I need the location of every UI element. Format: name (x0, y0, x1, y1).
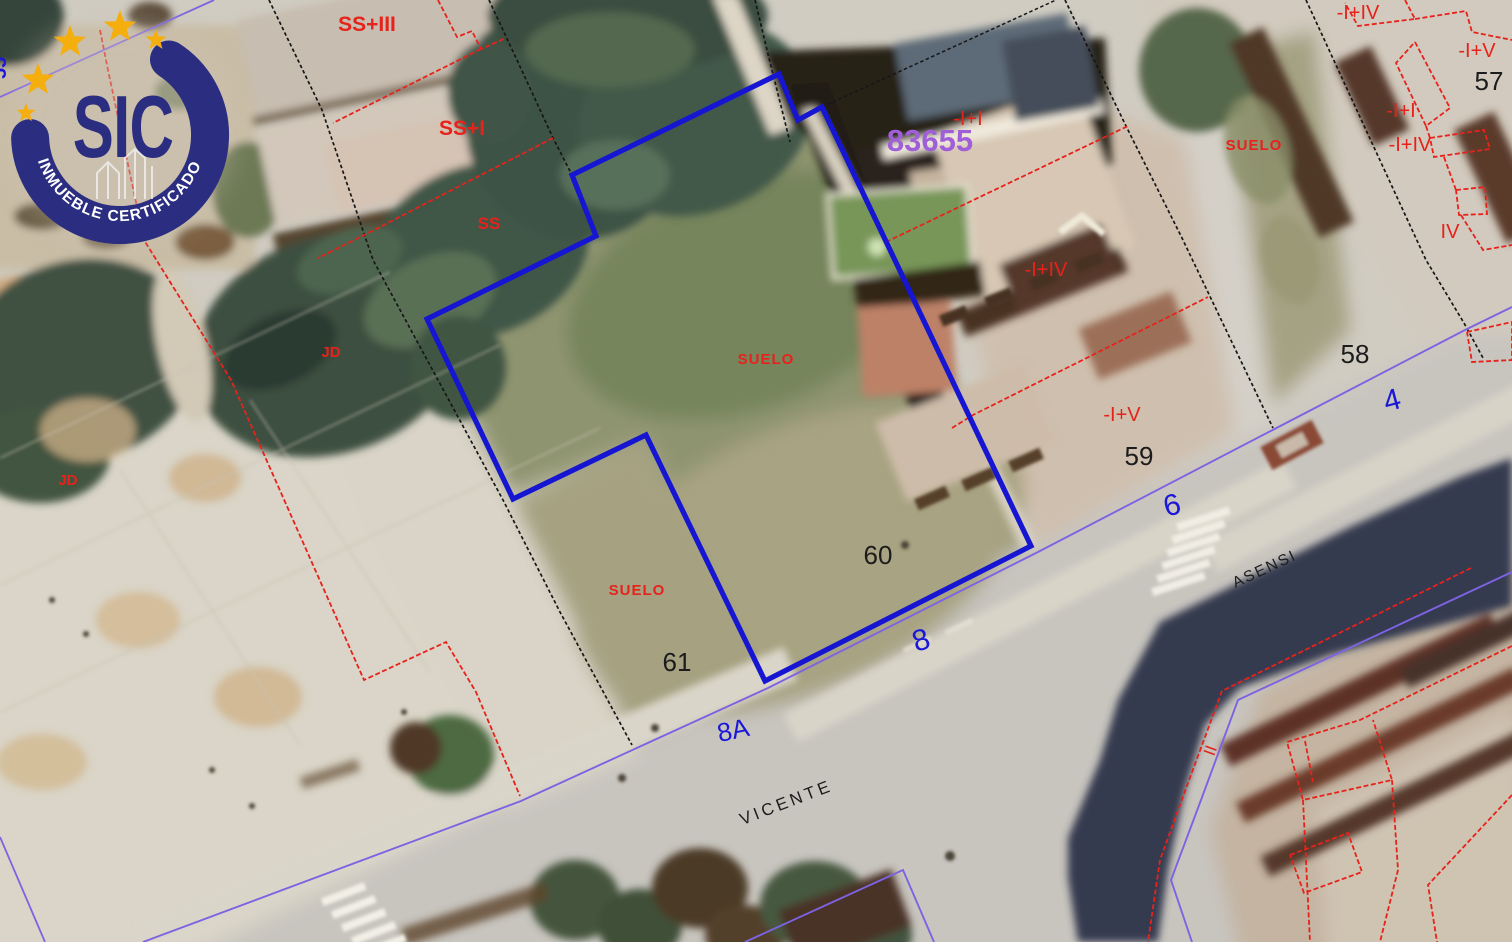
svg-text:60: 60 (864, 540, 893, 570)
svg-text:-I+IV: -I+IV (1389, 134, 1432, 156)
svg-text:SS: SS (478, 214, 501, 233)
svg-text:JD: JD (58, 472, 77, 489)
svg-text:-I+IV: -I+IV (1337, 2, 1380, 24)
svg-text:SUELO: SUELO (738, 351, 795, 368)
svg-text:57: 57 (1475, 66, 1504, 96)
svg-text:59: 59 (1125, 441, 1154, 471)
svg-text:55: 55 (0, 57, 11, 79)
svg-text:SS+I: SS+I (439, 117, 485, 140)
svg-text:58: 58 (1341, 339, 1370, 369)
svg-text:SS+III: SS+III (338, 13, 396, 36)
svg-text:SUELO: SUELO (1226, 137, 1283, 154)
svg-text:-I+IV: -I+IV (1025, 259, 1068, 281)
svg-text:IV: IV (1441, 221, 1461, 243)
svg-text:SUELO: SUELO (609, 582, 666, 599)
svg-text:-I+I: -I+I (1386, 100, 1415, 122)
svg-text:SIC: SIC (73, 78, 174, 176)
svg-text:61: 61 (663, 647, 692, 677)
svg-text:JD: JD (321, 344, 340, 361)
svg-text:-I+V: -I+V (1103, 404, 1141, 426)
svg-text:-I+V: -I+V (1458, 40, 1496, 62)
svg-text:-I+I: -I+I (953, 108, 982, 130)
